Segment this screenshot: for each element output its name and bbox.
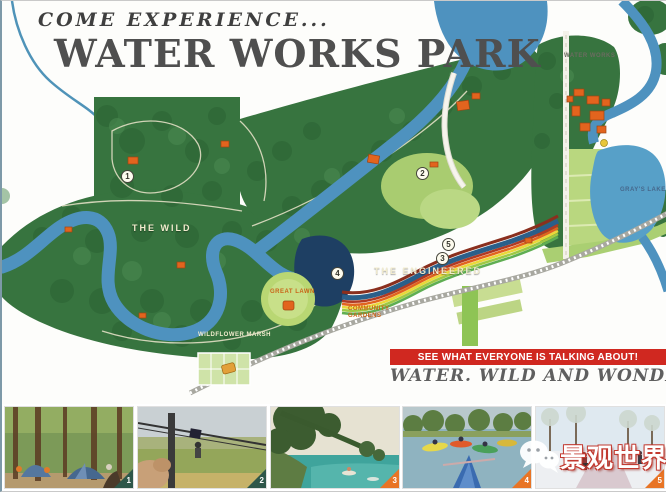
page-title: WATER WORKS PARK [54,31,541,76]
wechat-icon [518,437,560,475]
great-lawn-circle [261,272,315,326]
photo-badge: 1 [114,469,133,488]
wechat-watermark: 景观世界 [518,437,666,475]
photo-forest-camping: 1 [5,407,133,488]
watermark-text: 景观世界 [560,438,666,475]
area-label-grays-lake: GRAY'S LAKE [620,187,666,193]
area-label-great-lawn: GREAT LAWN [270,289,315,296]
map-marker-2: 2 [416,167,429,180]
photo-creek-swimming: 3 [271,407,399,488]
area-label-community-gardens: COMMUNITY GARDENS [348,306,396,319]
area-label-wildflower-marsh: WILDFLOWER MARSH [198,332,271,338]
area-label-the-wild: THE WILD [132,223,192,233]
banner-headline: SEE WHAT EVERYONE IS TALKING ABOUT! [390,349,666,365]
photo-badge: 3 [380,469,399,488]
photo-zipline: 2 [138,407,266,488]
area-label-the-engineered: THE ENGINEERED [374,266,482,276]
map-marker-1: 1 [121,170,134,183]
photo-kayaking: 4 [403,407,531,488]
water-works-park-poster: THE WILD THE ENGINEERED WATER WORKS GRAY… [0,0,666,492]
map-marker-4: 4 [331,267,344,280]
map-marker-5: 5 [442,238,455,251]
photo-badge: 2 [247,469,266,488]
title-kicker: COME EXPERIENCE... [38,9,330,31]
gridded-lot [198,353,250,385]
pond-icon [601,140,608,147]
banner-tagline: WATER. WILD AND WONDER! [390,366,666,386]
area-label-water-works: WATER WORKS [564,53,615,59]
map-marker-3: 3 [436,252,449,265]
